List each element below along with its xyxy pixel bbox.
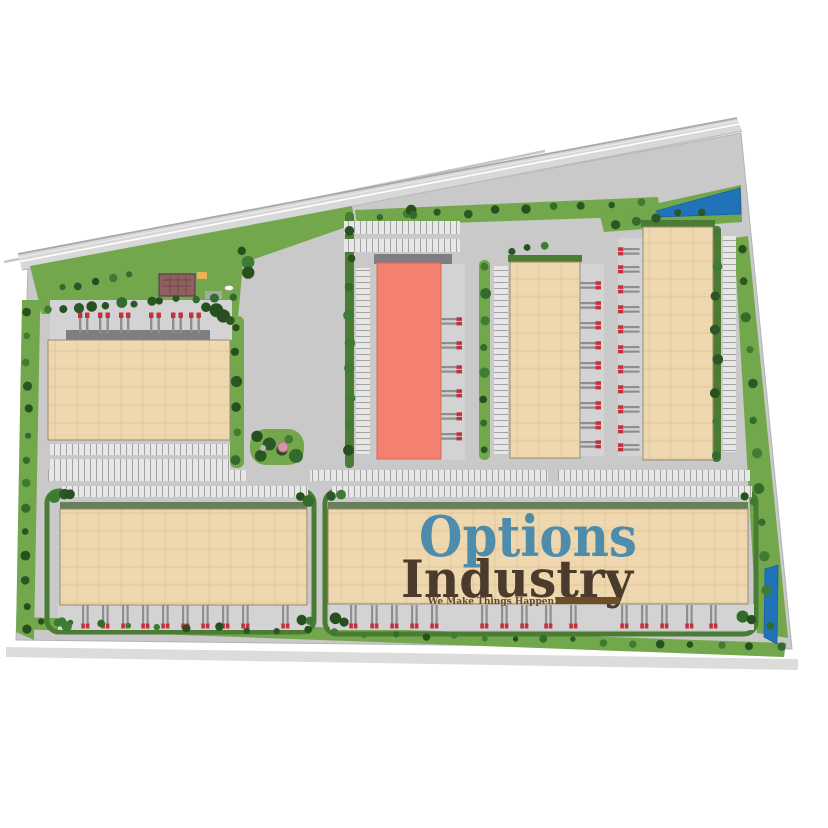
tree-icon [22, 479, 31, 488]
tree-icon [38, 618, 44, 624]
tree-icon [97, 620, 105, 628]
tree-icon [741, 312, 751, 322]
tree-icon [304, 626, 312, 634]
tree-icon [451, 632, 457, 638]
tree-icon [210, 294, 219, 303]
tree-icon [611, 220, 620, 229]
tree-icon [193, 296, 200, 303]
tree-icon [48, 491, 60, 503]
tree-icon [23, 457, 30, 464]
tree-icon [608, 202, 615, 209]
tree-icon [201, 302, 211, 312]
tree-icon [761, 585, 771, 595]
tree-icon [741, 492, 749, 500]
tree-icon [541, 242, 549, 250]
tree-icon [232, 324, 239, 331]
tree-icon [345, 283, 353, 291]
tree-icon [289, 449, 303, 463]
tree-icon [234, 429, 242, 437]
tree-icon [251, 431, 262, 442]
tree-icon [481, 316, 490, 325]
tree-icon [710, 325, 720, 335]
tree-icon [767, 622, 775, 630]
tree-icon [423, 633, 430, 640]
parking-row [310, 470, 548, 481]
tree-icon [651, 214, 660, 223]
tree-icon [336, 490, 346, 500]
tree-icon [231, 376, 242, 387]
parking-row [344, 221, 460, 234]
hedge-top-mid-building [508, 255, 582, 262]
tree-icon [21, 504, 30, 513]
tree-icon [508, 248, 515, 255]
tree-icon [230, 294, 237, 301]
tree-icon [480, 344, 487, 351]
tree-icon [65, 489, 75, 499]
tree-icon [698, 209, 706, 217]
tree-icon [745, 642, 753, 650]
site-plan: Options Industry We Make Things Happen! [0, 0, 828, 828]
tree-icon [409, 211, 417, 219]
tree-icon [719, 642, 726, 649]
tree-icon [147, 297, 156, 306]
apron-highlight-east [441, 264, 465, 460]
tree-icon [777, 642, 785, 650]
tree-icon [231, 455, 241, 465]
tree-icon [255, 450, 267, 462]
tree-icon [712, 451, 721, 460]
tree-icon [344, 363, 354, 373]
building-middle [510, 262, 580, 458]
tree-icon [21, 576, 30, 585]
tree-icon [550, 202, 558, 210]
logo: Options Industry We Make Things Happen! [401, 504, 637, 610]
tree-icon [491, 205, 500, 214]
tree-icon [480, 288, 491, 299]
tree-icon [23, 382, 32, 391]
tree-icon [577, 202, 585, 210]
parking-row [50, 459, 230, 470]
tree-icon [713, 229, 721, 237]
tree-icon [481, 446, 488, 453]
parking-row [48, 470, 246, 481]
tree-icon [22, 308, 31, 317]
parking-row [558, 470, 750, 481]
tree-icon [131, 301, 138, 308]
building-southwest [60, 509, 307, 605]
tree-icon [348, 394, 356, 402]
tree-icon [393, 631, 399, 637]
tree-icon [125, 623, 131, 629]
tree-icon [62, 621, 72, 631]
tree-icon [285, 435, 294, 444]
tree-icon [747, 615, 756, 624]
parking-row [332, 486, 752, 497]
tree-icon [173, 295, 180, 302]
tree-icon [345, 338, 355, 348]
amenity-roof [159, 274, 195, 296]
tree-icon [343, 445, 354, 456]
tree-icon [25, 433, 31, 439]
tree-icon [231, 402, 241, 412]
parking-row [62, 486, 308, 497]
tree-icon [539, 635, 547, 643]
tree-icon [758, 519, 765, 526]
tree-icon [24, 333, 31, 340]
tree-icon [738, 245, 746, 253]
tree-icon [306, 617, 314, 625]
tree-icon [21, 551, 31, 561]
tree-icon [24, 603, 31, 610]
tree-icon [345, 226, 355, 236]
tree-icon [656, 640, 665, 649]
tree-icon [238, 247, 246, 255]
tree-icon [712, 418, 719, 425]
building-highlighted [377, 263, 441, 459]
tree-icon [629, 641, 636, 648]
ornamental-tree-icon [278, 442, 288, 452]
site-plan-image: Options Industry We Make Things Happen! [0, 0, 828, 828]
island-fixture [260, 445, 266, 451]
tree-icon [482, 636, 488, 642]
tree-icon [479, 368, 489, 378]
tree-icon [60, 284, 66, 290]
tree-icon [753, 483, 764, 494]
logo-underline [556, 597, 620, 604]
tree-icon [479, 396, 487, 404]
tree-icon [59, 305, 67, 313]
tree-icon [687, 641, 694, 648]
tree-icon [25, 404, 33, 412]
tree-icon [348, 255, 356, 263]
tree-icon [524, 244, 531, 251]
tree-icon [297, 615, 307, 625]
tree-icon [749, 417, 756, 424]
logo-tagline-text: We Make Things Happen! [427, 596, 558, 607]
tree-icon [361, 632, 367, 638]
tree-icon [480, 263, 488, 271]
tree-icon [748, 379, 758, 389]
tree-icon [737, 611, 749, 623]
parking-column [723, 236, 736, 452]
tree-icon [116, 297, 127, 308]
parking-row [50, 444, 230, 455]
tree-icon [746, 346, 753, 353]
tree-icon [711, 291, 720, 300]
tree-icon [109, 274, 117, 282]
tree-icon [343, 310, 353, 320]
tree-icon [74, 283, 82, 291]
tree-icon [638, 198, 646, 206]
tree-icon [377, 214, 383, 220]
tree-icon [521, 204, 530, 213]
tree-icon [759, 551, 769, 561]
detention-pond-southeast [764, 565, 778, 644]
tree-icon [713, 354, 724, 365]
tree-icon [242, 266, 254, 278]
tree-icon [126, 271, 132, 277]
tree-icon [570, 636, 575, 641]
building-northwest [48, 340, 230, 440]
tree-icon [434, 209, 441, 216]
tree-icon [22, 359, 30, 367]
tree-icon [154, 624, 160, 630]
tree-icon [340, 618, 349, 627]
hedge-top-ne-building [641, 220, 715, 227]
tree-icon [92, 278, 99, 285]
tree-icon [74, 303, 84, 313]
tree-icon [326, 492, 335, 501]
tree-icon [710, 388, 720, 398]
parking-row [344, 239, 460, 252]
amenity-annex [197, 272, 207, 279]
tree-icon [674, 209, 681, 216]
tree-icon [243, 628, 250, 635]
tree-icon [740, 277, 748, 285]
tree-icon [330, 628, 338, 636]
tree-icon [513, 636, 518, 641]
tree-icon [600, 639, 608, 647]
tree-icon [182, 624, 190, 632]
tree-icon [44, 306, 52, 314]
tree-icon [632, 217, 641, 226]
building-northeast [643, 227, 713, 460]
parking-column [356, 268, 370, 454]
tree-icon [303, 495, 315, 507]
dock-band-sw [60, 502, 307, 509]
tree-icon [22, 528, 29, 535]
parking-column [494, 266, 508, 454]
tree-icon [215, 622, 223, 630]
lawn-strip-east-of-nw-building [230, 316, 244, 468]
tree-icon [273, 628, 280, 635]
tree-icon [713, 262, 723, 272]
tree-icon [231, 348, 239, 356]
tree-icon [156, 297, 163, 304]
tree-icon [752, 448, 762, 458]
tree-icon [226, 316, 235, 325]
tree-icon [102, 302, 109, 309]
tree-icon [464, 210, 473, 219]
amenity-pad [225, 285, 234, 290]
tree-icon [86, 301, 97, 312]
tree-icon [480, 420, 487, 427]
tree-icon [22, 625, 31, 634]
tree-icon [345, 421, 354, 430]
tree-icon [750, 498, 758, 506]
